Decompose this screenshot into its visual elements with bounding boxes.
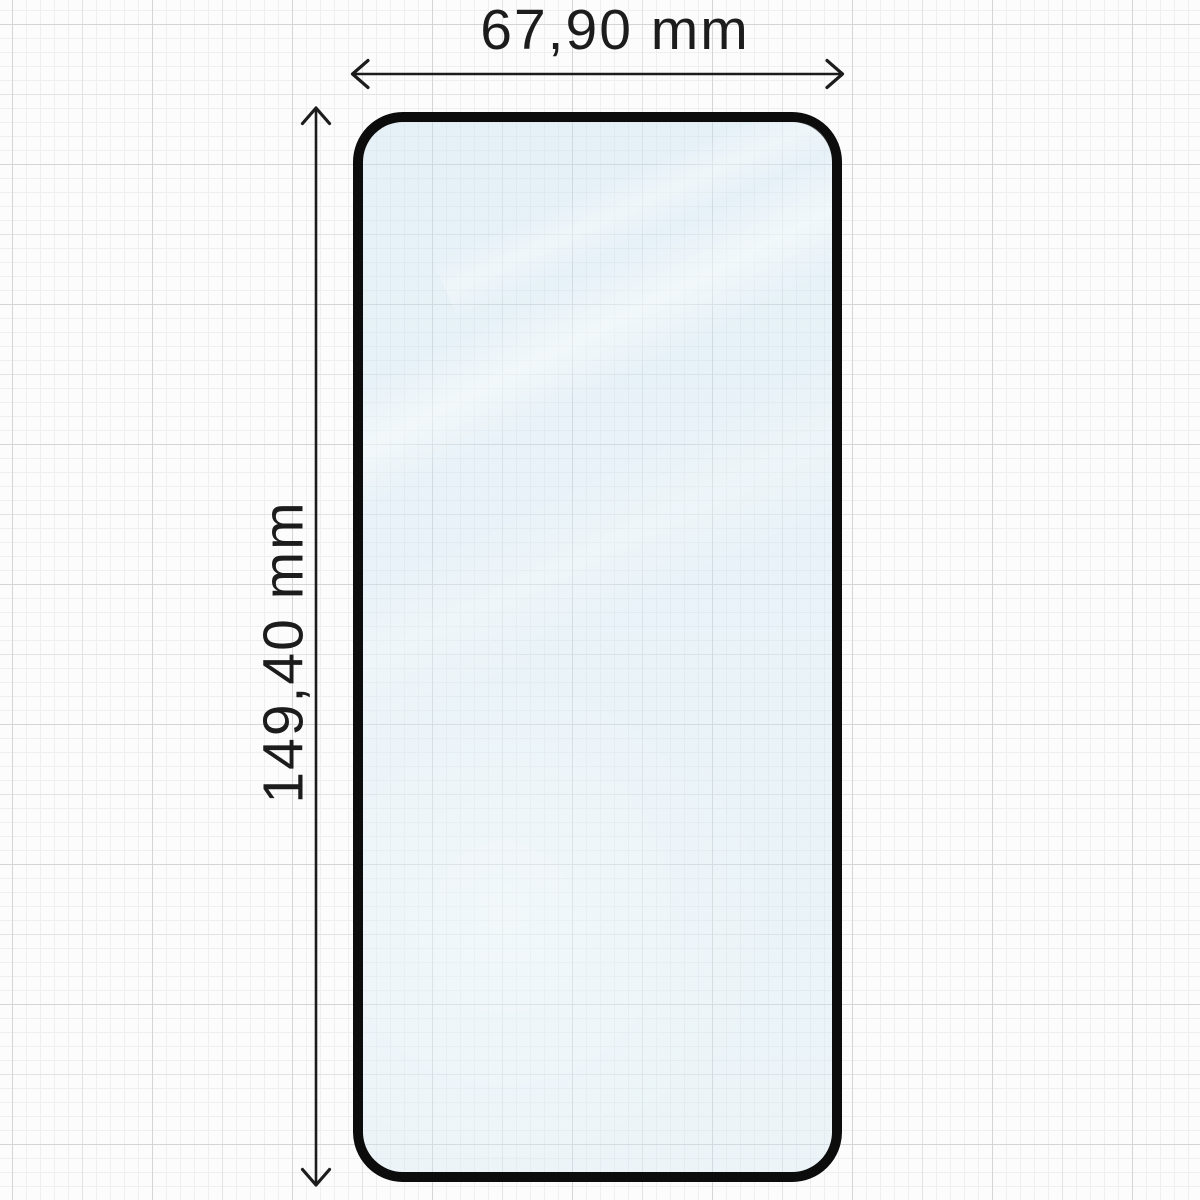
arrow-down-icon bbox=[303, 1170, 330, 1186]
glass-reflection-glow bbox=[363, 602, 803, 1172]
graph-paper-background: 67,90 mm 149,40 mm bbox=[0, 0, 1200, 1200]
width-dimension-label: 67,90 mm bbox=[480, 2, 749, 59]
arrow-left-icon bbox=[353, 61, 369, 88]
height-dimension-label: 149,40 mm bbox=[256, 500, 313, 803]
arrow-right-icon bbox=[827, 61, 843, 88]
arrow-up-icon bbox=[303, 108, 330, 124]
screen-protector-glass bbox=[353, 112, 842, 1182]
glass-surface bbox=[363, 122, 832, 1172]
width-dimension-arrow bbox=[353, 61, 843, 88]
